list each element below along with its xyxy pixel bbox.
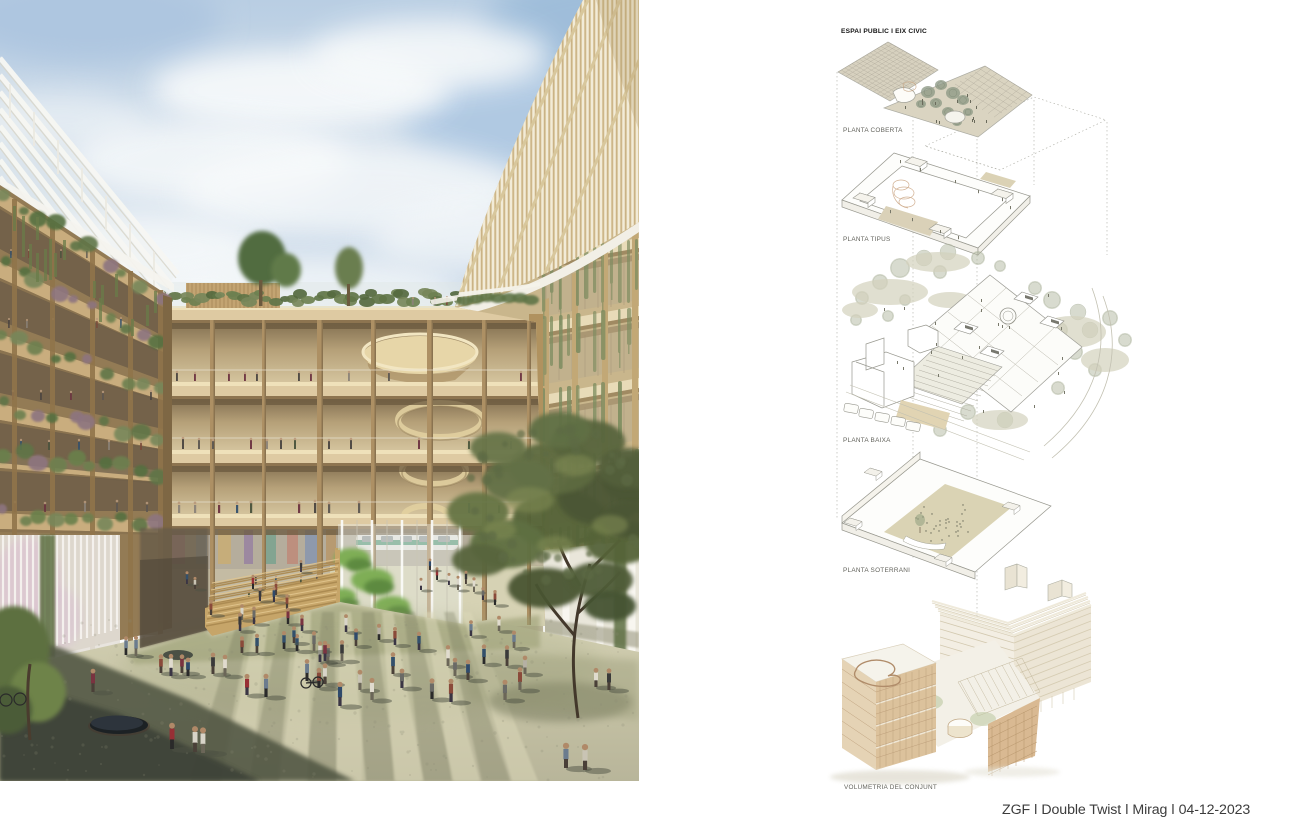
svg-text:VOLUMETRIA DEL CONJUNT: VOLUMETRIA DEL CONJUNT bbox=[844, 784, 937, 791]
svg-text:ESPAI PUBLIC I EIX CIVIC: ESPAI PUBLIC I EIX CIVIC bbox=[841, 28, 927, 35]
svg-text:PLANTA SOTERRANI: PLANTA SOTERRANI bbox=[843, 567, 910, 574]
svg-text:PLANTA COBERTA: PLANTA COBERTA bbox=[843, 127, 903, 134]
svg-text:PLANTA BAIXA: PLANTA BAIXA bbox=[843, 437, 891, 444]
svg-text:PLANTA TIPUS: PLANTA TIPUS bbox=[843, 236, 891, 243]
svg-text:ZGF ǀ Double Twist ǀ Mirag ǀ: ZGF ǀ Double Twist ǀ Mirag ǀ 04-12-2023 bbox=[1002, 802, 1250, 818]
